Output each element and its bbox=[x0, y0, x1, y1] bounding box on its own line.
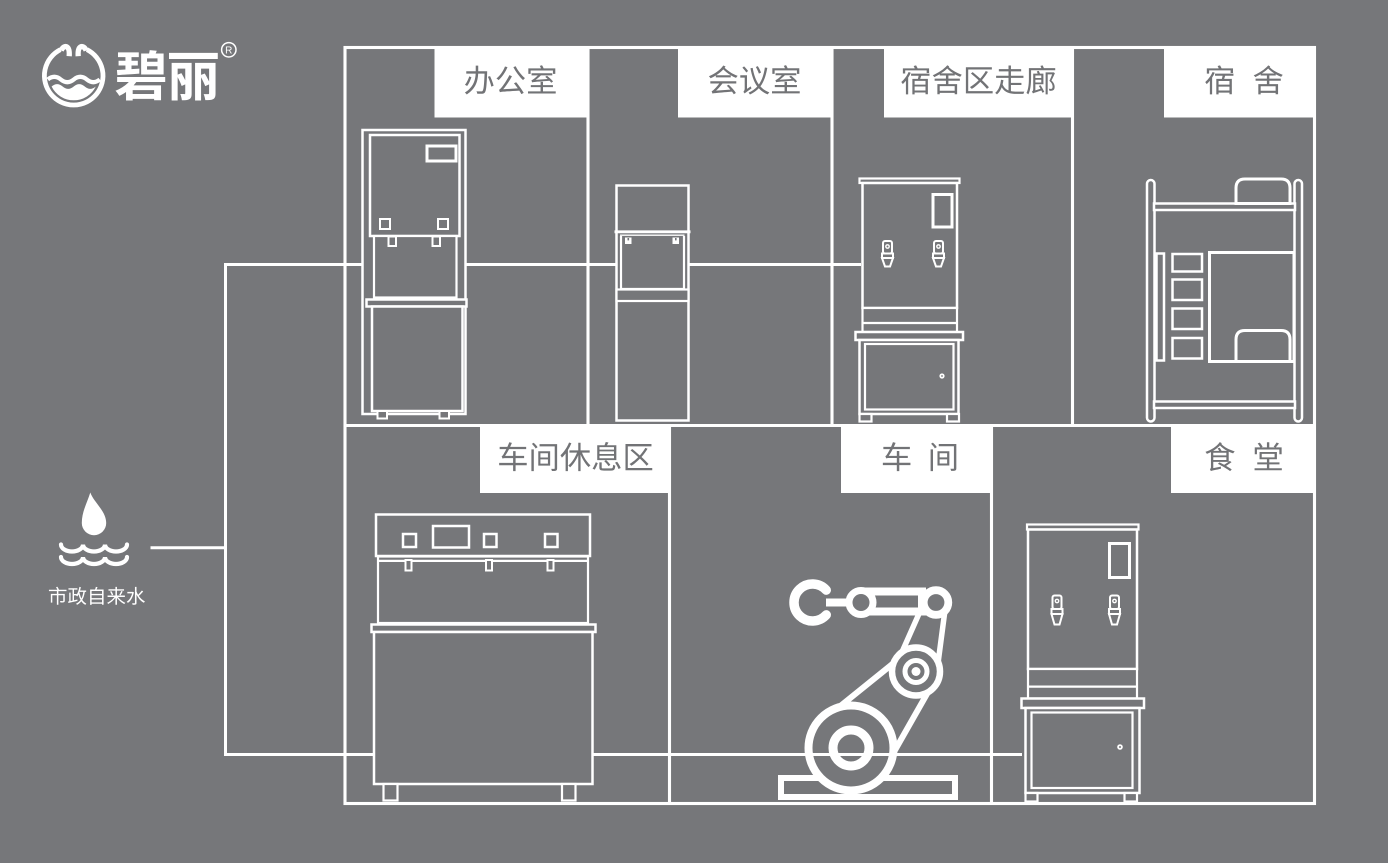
svg-text:R: R bbox=[225, 46, 232, 57]
